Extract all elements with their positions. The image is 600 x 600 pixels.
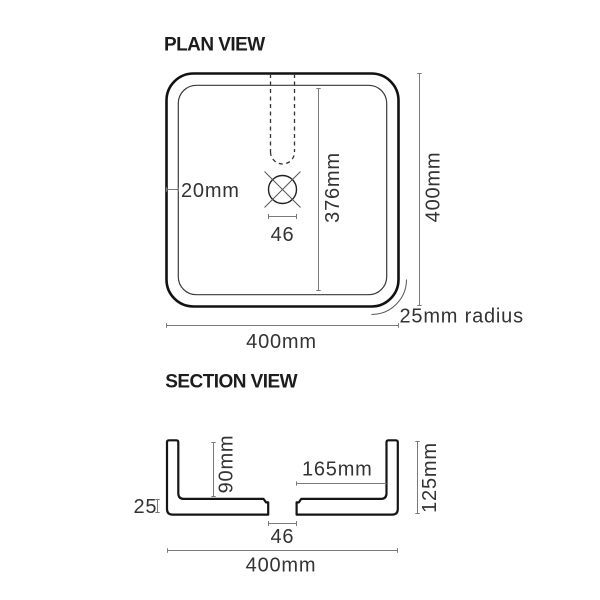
svg-text:376mm: 376mm xyxy=(322,152,344,223)
svg-text:400mm: 400mm xyxy=(423,152,445,223)
svg-text:90mm: 90mm xyxy=(216,435,238,494)
svg-text:400mm: 400mm xyxy=(246,555,317,577)
svg-text:46: 46 xyxy=(270,526,294,548)
svg-text:25: 25 xyxy=(133,496,157,518)
svg-text:125mm: 125mm xyxy=(419,442,441,513)
svg-text:20mm: 20mm xyxy=(181,180,240,202)
svg-text:SECTION VIEW: SECTION VIEW xyxy=(165,372,297,393)
svg-text:PLAN VIEW: PLAN VIEW xyxy=(164,35,265,56)
svg-text:46: 46 xyxy=(271,224,295,246)
svg-text:165mm: 165mm xyxy=(302,458,373,480)
svg-text:400mm: 400mm xyxy=(246,331,317,353)
svg-text:25mm radius: 25mm radius xyxy=(400,306,524,328)
